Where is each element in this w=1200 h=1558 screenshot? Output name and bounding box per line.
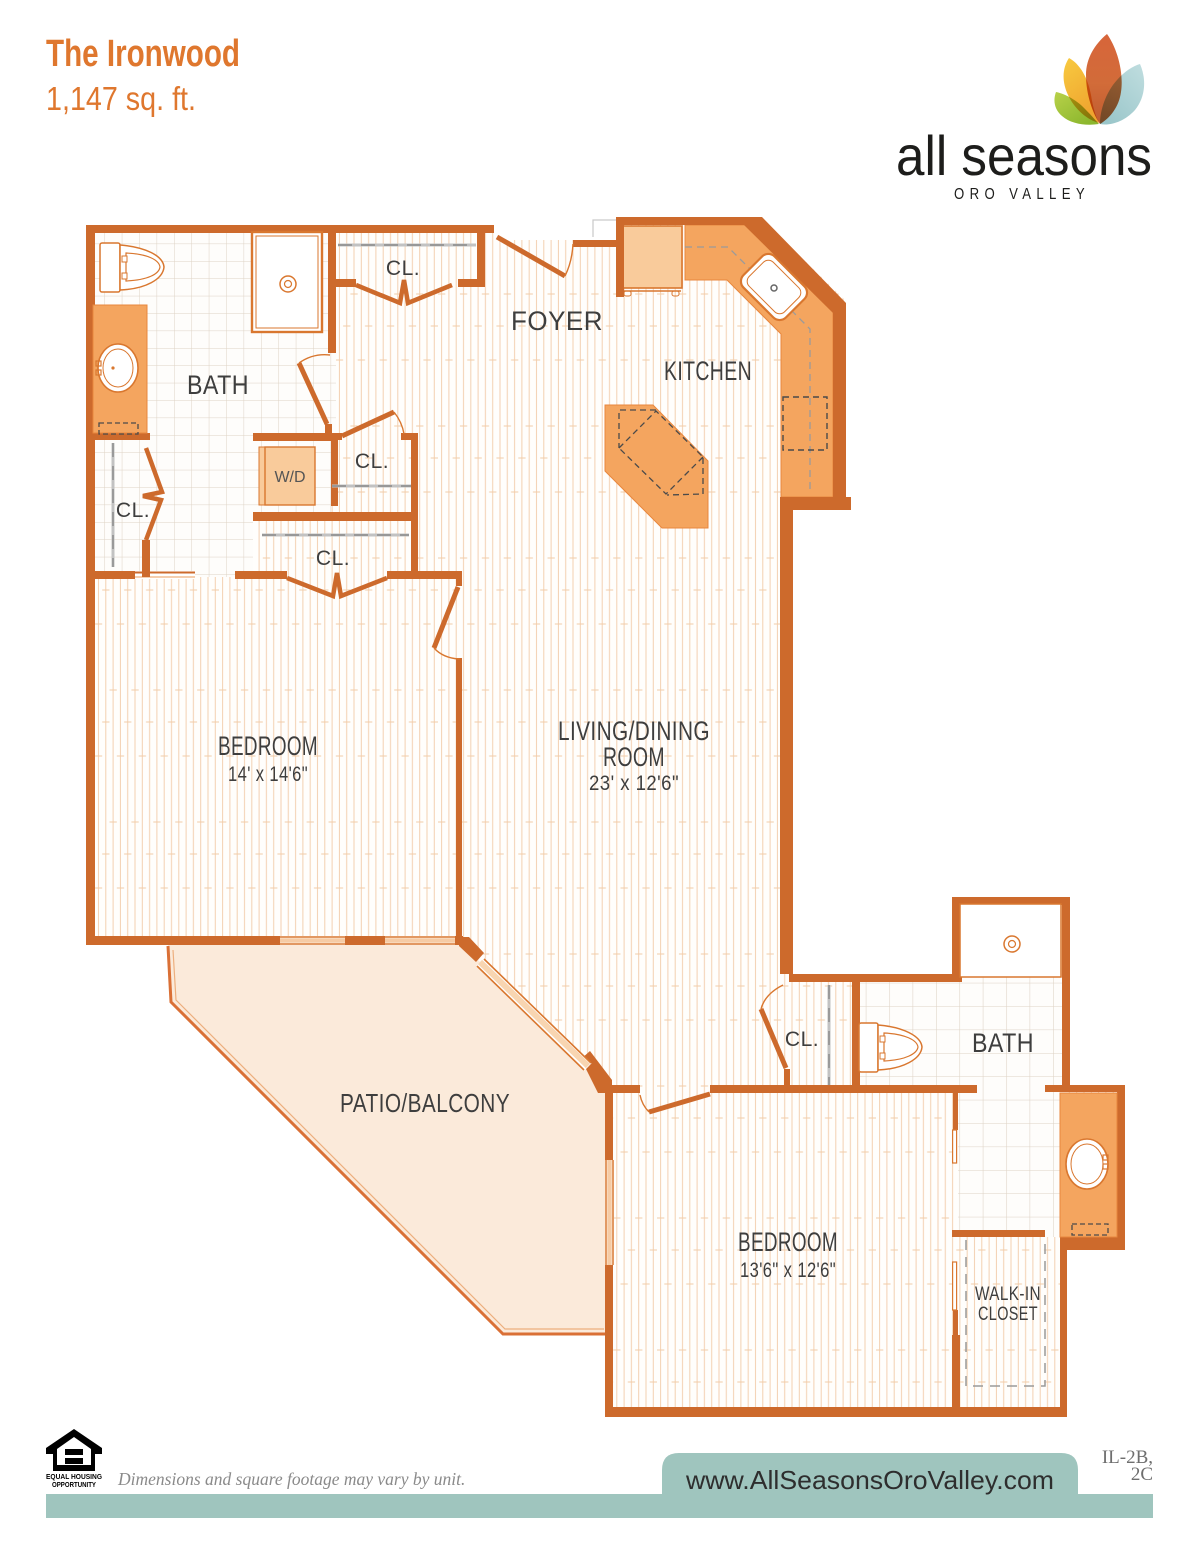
svg-text:KITCHEN: KITCHEN [664, 356, 752, 386]
svg-text:Dimensions and square footage: Dimensions and square footage may vary b… [117, 1469, 465, 1489]
svg-text:ROOM: ROOM [603, 742, 665, 772]
svg-text:BEDROOM: BEDROOM [738, 1227, 838, 1257]
svg-text:BATH: BATH [187, 370, 249, 400]
svg-text:CL.: CL. [785, 1028, 819, 1051]
svg-text:13'6" x 12'6": 13'6" x 12'6" [740, 1259, 836, 1282]
svg-text:CLOSET: CLOSET [978, 1304, 1038, 1325]
svg-text:all seasons: all seasons [896, 124, 1152, 187]
svg-text:1,147 sq. ft.: 1,147 sq. ft. [46, 80, 196, 117]
svg-text:14' x 14'6": 14' x 14'6" [228, 763, 308, 786]
svg-text:PATIO/BALCONY: PATIO/BALCONY [340, 1088, 510, 1118]
svg-text:CL.: CL. [116, 499, 150, 522]
svg-text:ORO VALLEY: ORO VALLEY [954, 186, 1090, 203]
svg-text:CL.: CL. [355, 450, 389, 473]
svg-text:The Ironwood: The Ironwood [46, 33, 240, 75]
svg-text:www.AllSeasonsOroValley.com: www.AllSeasonsOroValley.com [685, 1465, 1054, 1495]
svg-text:FOYER: FOYER [511, 306, 603, 336]
svg-text:BEDROOM: BEDROOM [218, 731, 318, 761]
svg-text:CL.: CL. [386, 257, 420, 280]
svg-text:23' x 12'6": 23' x 12'6" [589, 772, 679, 795]
svg-text:BATH: BATH [972, 1028, 1034, 1058]
svg-text:W/D: W/D [274, 469, 305, 486]
svg-text:2C: 2C [1131, 1464, 1153, 1485]
svg-text:WALK-IN: WALK-IN [975, 1284, 1041, 1305]
svg-text:EQUAL HOUSING: EQUAL HOUSING [46, 1474, 103, 1481]
svg-text:OPPORTUNITY: OPPORTUNITY [52, 1482, 96, 1489]
svg-text:CL.: CL. [316, 547, 350, 570]
